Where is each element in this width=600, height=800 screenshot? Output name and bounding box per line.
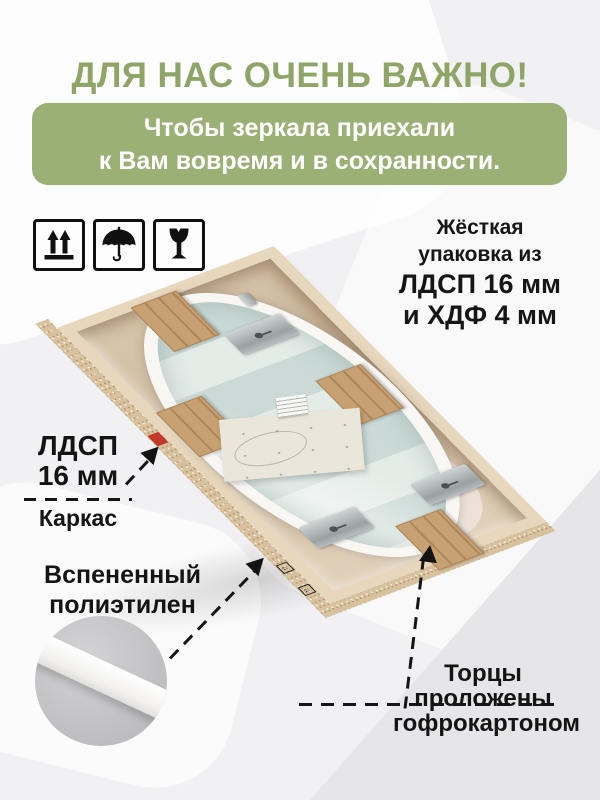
keep-dry-icon (93, 219, 145, 271)
edges-dashed-line (299, 703, 561, 706)
packaging-note-line-4: и ХДФ 4 мм (378, 300, 582, 331)
edges-callout-line-2: проложены (393, 686, 573, 711)
packaging-note-line-3: ЛДСП 16 мм (378, 269, 582, 300)
foam-detail-circle (35, 616, 167, 746)
foam-profile (35, 625, 167, 725)
barcode-sticker (276, 394, 308, 418)
edges-callout-line-1: Торцы (393, 661, 573, 686)
edges-arrow-head (419, 544, 439, 563)
frame-callout-line-1: ЛДСП (14, 431, 142, 461)
this-way-up-icon (33, 219, 85, 271)
page-title: ДЛЯ НАС ОЧЕНЬ ВАЖНО! (0, 56, 600, 96)
edges-callout-line-3: гофрокартоном (393, 711, 573, 736)
packaging-note: Жёсткая упаковка из ЛДСП 16 мм и ХДФ 4 м… (378, 214, 582, 331)
handling-icons-row (33, 219, 205, 271)
frame-callout-line-2: 16 мм (14, 461, 142, 491)
infographic-page: ДЛЯ НАС ОЧЕНЬ ВАЖНО! Чтобы зеркала приех… (0, 0, 600, 800)
subtitle-line-1: Чтобы зеркала приехали (144, 113, 455, 143)
frame-callout-line-3: Каркас (14, 505, 142, 532)
packaging-note-line-2: упаковка из (378, 241, 582, 268)
dashed-divider (24, 498, 132, 501)
fragile-icon (153, 219, 205, 271)
foam-callout-line-2: полиэтилен (10, 591, 235, 621)
frame-callout: ЛДСП 16 мм Каркас (14, 431, 142, 532)
packaging-note-line-1: Жёсткая (378, 214, 582, 241)
subtitle-banner: Чтобы зеркала приехали к Вам вовремя и в… (32, 103, 567, 185)
foam-callout: Вспененный полиэтилен (10, 561, 235, 620)
instruction-sheet (219, 408, 365, 482)
foam-callout-line-1: Вспененный (10, 561, 235, 591)
edges-callout: Торцы проложены гофрокартоном (393, 661, 573, 736)
subtitle-line-2: к Вам вовремя и в сохранности. (99, 146, 500, 176)
